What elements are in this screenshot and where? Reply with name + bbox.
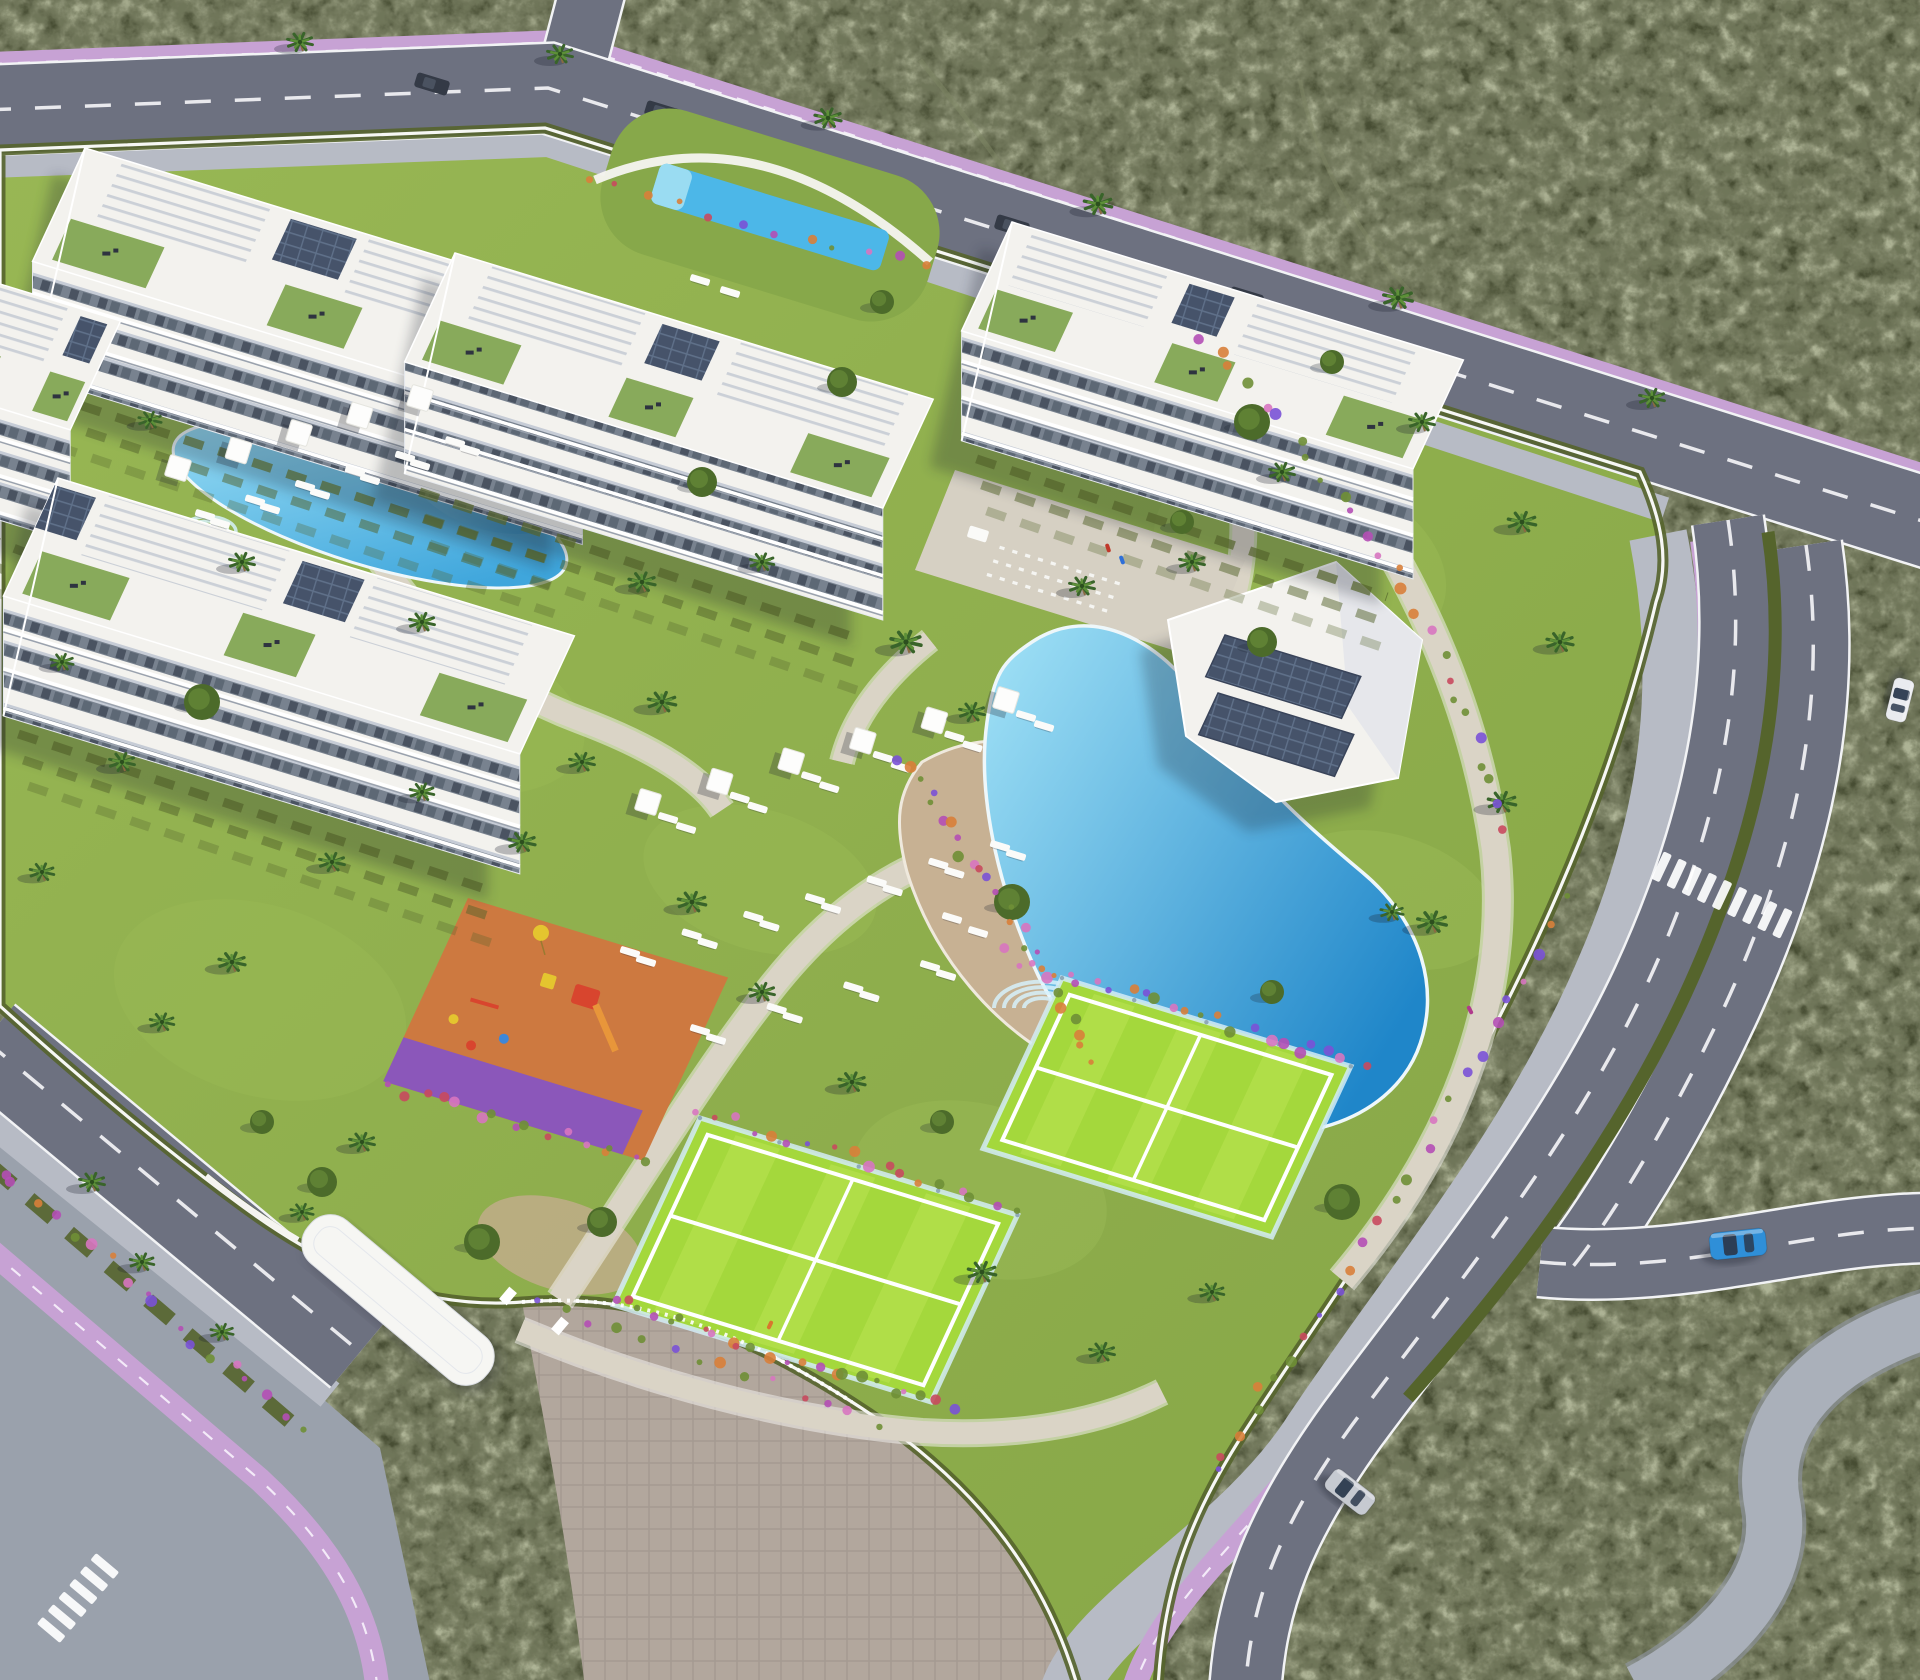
render-canvas bbox=[0, 0, 1920, 1680]
spring-rider bbox=[449, 1014, 459, 1024]
spring-rider bbox=[499, 1034, 509, 1044]
balloon bbox=[533, 925, 549, 941]
aerial-render bbox=[0, 0, 1920, 1680]
spring-rider bbox=[466, 1040, 476, 1050]
